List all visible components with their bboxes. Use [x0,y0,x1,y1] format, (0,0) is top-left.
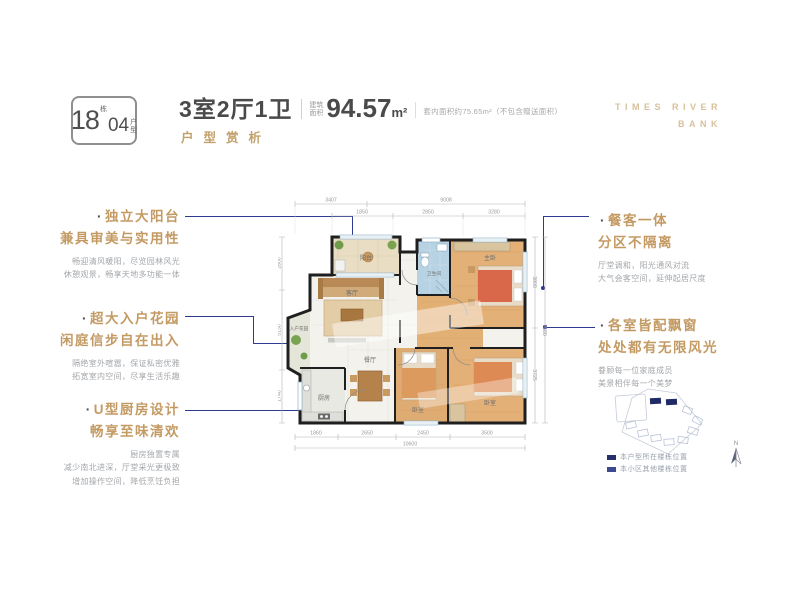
area-value: 94.57m² [326,95,407,121]
bed-blanket [478,270,512,302]
divider [301,99,302,119]
brand-logo: TIMES RIVER BANK [560,99,722,132]
connector-line [545,327,595,328]
room-label-balcony: 阳台 [360,254,372,262]
svg-text:3500: 3500 [481,431,493,437]
svg-text:2650: 2650 [361,431,373,437]
svg-text:3800: 3800 [531,276,537,288]
area-note: 套内面积约75.65m²（不包含赠送面积） [423,106,562,117]
svg-text:5130: 5130 [278,324,283,336]
callout-bay-windows: ·各室皆配飘窗 处处都有无限风光 眷顾每一位家庭成员 美景相伴每一个美梦 [598,315,748,391]
connector-line [185,316,254,317]
north-label: N [734,441,738,447]
sofa-back [320,278,382,287]
toilet-tank [421,253,429,257]
block-suffix: 栋 [100,104,107,114]
header: 3室2厅1卫 建筑 面积 94.57m² 套内面积约75.65m²（不包含赠送面… [179,93,562,121]
dining-table [358,371,382,401]
page-title: 3室2厅1卫 [179,98,292,121]
connector-line [253,316,254,343]
area-unit: m² [391,105,407,120]
toilet [421,257,429,267]
floorplan: 阳台 客厅 餐厅 厨房 入户花园 卫生间 主卧 卧室 卧室 [278,190,550,456]
room-label-living: 客厅 [346,289,358,297]
legend-item: 本小区其他楼栋位置 [607,464,688,474]
plant [291,335,301,345]
callout-kitchen: ·U型厨房设计 畅享至味清欢 厨房独置专属 减少南北进深，厅堂采光更极致 增加操… [40,399,180,488]
pillow [514,288,522,301]
unit-number: 04 [108,116,129,135]
callout-entry-garden: ·超大入户花园 闲庭信步自在出入 隔绝室外喧嚣，保证私密优雅 拓宽室内空间，尽享… [40,308,180,384]
wardrobe [454,242,510,251]
subtitle: 户型赏析 [181,127,271,146]
callout-balcony: ·独立大阳台 兼具审美与实用性 畅迎清风暖阳，尽览园林风光 休憩观景，畅享天地多… [40,206,180,282]
coffee-table [341,309,363,321]
room-label-entry-garden: 入户花园 [290,325,309,332]
unit-suffix: 户 型 [130,119,137,134]
plant [388,241,397,250]
chair [350,389,357,396]
svg-text:1860: 1860 [310,431,322,437]
svg-text:2800: 2800 [278,257,283,269]
area-label: 建筑 面积 [309,102,323,118]
chair [350,375,357,382]
stove [318,414,330,420]
north-compass: N [727,438,745,470]
plant [301,353,308,360]
wardrobe [450,404,465,422]
room-label-master: 主卧 [484,254,496,262]
callout-dining-living: ·餐客一体 分区不隔离 厅堂调和，阳光通风对流 大气会客空间，延伸起居尺度 [598,210,748,286]
svg-text:3407: 3407 [325,198,337,204]
legend-swatch [607,467,616,472]
unit-badge: 18 栋 04 户 型 [71,96,137,145]
svg-text:7580: 7580 [541,324,547,336]
chair [383,389,390,396]
svg-text:9008: 9008 [440,198,452,204]
floorplan-poster: 18 栋 04 户 型 3室2厅1卫 建筑 面积 94.57m² 套内面积约75… [0,0,800,594]
svg-text:1740: 1740 [278,390,283,402]
callout-title: ·独立大阳台 [40,206,180,228]
svg-text:1850: 1850 [356,210,368,216]
plant [335,241,344,250]
sink [304,385,310,391]
svg-text:3280: 3280 [488,210,500,216]
room-label-bedroom2: 卧室 [484,399,496,407]
legend-swatch [607,455,616,460]
room-label-kitchen: 厨房 [318,394,330,402]
svg-text:3725: 3725 [531,369,537,381]
sofa-arm [318,278,323,299]
pillow [514,270,522,283]
svg-text:2450: 2450 [417,431,429,437]
pillow [421,354,434,363]
pillow [404,354,417,363]
washing-machine [335,260,345,271]
legend-label: 本户型所在楼栋位置 [620,452,688,462]
bath-sink [437,244,447,251]
site-highlighted-buildings [650,398,677,406]
room-label-dining: 餐厅 [364,356,376,364]
block-number: 18 [71,107,99,134]
divider [415,102,416,118]
nightstand [468,266,475,273]
chair [383,375,390,382]
svg-text:10600: 10600 [403,442,418,448]
callout-body: 畅迎清风暖阳，尽览园林风光 休憩观景，畅享天地多功能一体 [40,255,180,281]
sofa-arm [379,278,384,299]
north-needle [731,448,736,464]
svg-text:2850: 2850 [422,210,434,216]
legend-item: 本户型所在楼栋位置 [607,452,688,462]
burner [325,415,328,418]
burner [320,415,323,418]
room-label-bathroom: 卫生间 [427,270,442,277]
